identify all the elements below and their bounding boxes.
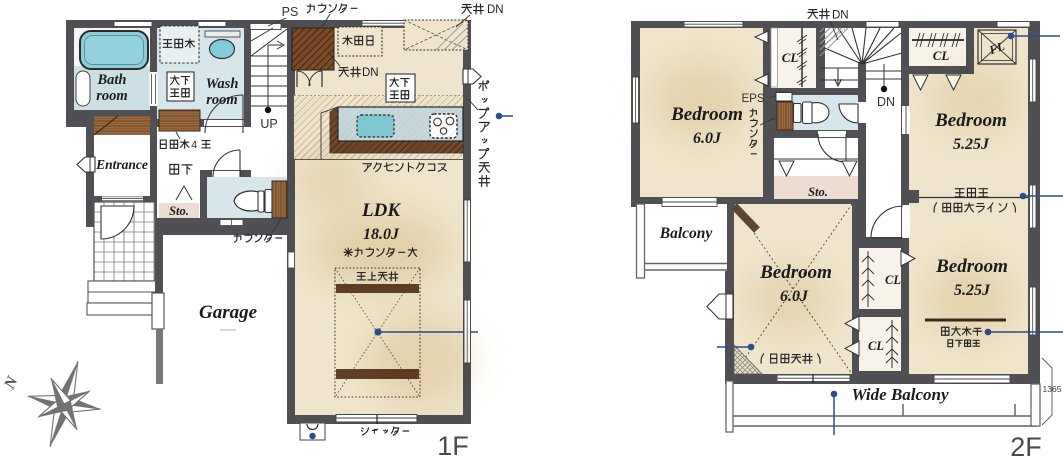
- svg-text:DN: DN: [832, 10, 849, 22]
- svg-text:PS: PS: [282, 5, 299, 19]
- svg-text:room: room: [206, 92, 237, 108]
- svg-text:Bath: Bath: [96, 72, 126, 88]
- svg-text:Wash: Wash: [206, 76, 239, 92]
- svg-text:Wide Balcony: Wide Balcony: [851, 385, 949, 404]
- svg-text:DN: DN: [362, 67, 379, 79]
- svg-text:2F: 2F: [1010, 432, 1042, 461]
- svg-text:1365: 1365: [1043, 384, 1062, 394]
- svg-text:Garage: Garage: [199, 302, 258, 323]
- svg-text:Entrance: Entrance: [95, 157, 148, 172]
- svg-text:room: room: [96, 88, 127, 104]
- svg-text:UP: UP: [260, 117, 277, 131]
- svg-text:DN: DN: [877, 95, 895, 109]
- svg-text:CL: CL: [782, 50, 799, 65]
- svg-text:Sto.: Sto.: [169, 204, 189, 218]
- svg-text:DN: DN: [487, 4, 504, 16]
- svg-text:CL: CL: [885, 273, 901, 287]
- svg-text:5.25J: 5.25J: [953, 136, 990, 153]
- svg-text:4: 4: [191, 139, 197, 151]
- svg-text:Balcony: Balcony: [659, 225, 713, 242]
- svg-text:CL: CL: [933, 48, 950, 63]
- svg-text:CL: CL: [868, 339, 884, 353]
- svg-text:1F: 1F: [437, 431, 469, 461]
- svg-text:Sto.: Sto.: [808, 185, 828, 199]
